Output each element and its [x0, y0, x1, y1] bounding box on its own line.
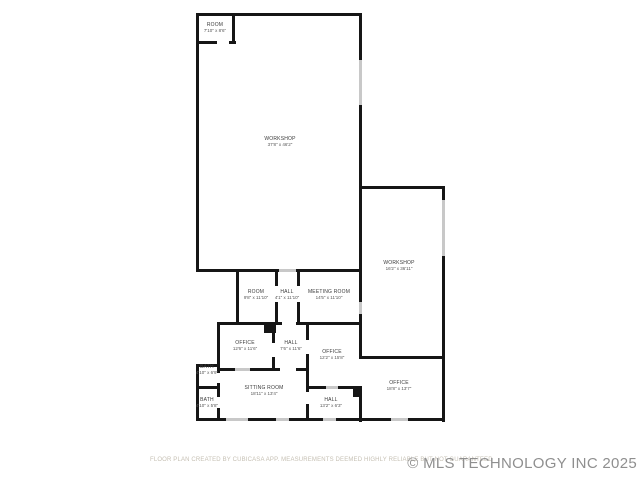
watermark-text: © MLS TECHNOLOGY INC 2025	[407, 455, 637, 472]
label-workshop-main: WORKSHOP 37'8" x 46'2"	[264, 136, 295, 148]
room-dims: 14'5" x 11'10"	[316, 295, 343, 301]
label-office-left: OFFICE 12'6" x 11'6"	[233, 340, 257, 352]
room-dims: 12'6" x 11'6"	[233, 346, 257, 352]
room-dims: 9'8" x 11'10"	[244, 295, 268, 301]
room-dims: 4'10" x 6'9"	[196, 370, 218, 376]
label-hall-lower: HALL 13'2" x 6'3"	[320, 397, 342, 409]
room-dims: 7'6" x 11'6"	[280, 346, 302, 352]
room-dims: 13'2" x 6'3"	[320, 403, 342, 409]
room-dims: 18'8" x 13'7"	[387, 386, 412, 392]
label-room-topleft: ROOM 7'10" x 8'6"	[204, 22, 226, 34]
label-bath-lower: BATH 4'10" x 5'8"	[196, 397, 218, 409]
room-dims: 12'2" x 15'8"	[320, 355, 345, 361]
room-dims: 7'10" x 8'6"	[204, 28, 226, 34]
label-hall-middle: HALL 7'6" x 11'6"	[280, 340, 302, 352]
label-workshop-right: WORKSHOP 16'2" x 36'11"	[383, 260, 414, 272]
label-hall-upper: HALL 4'1" x 11'10"	[275, 289, 299, 301]
windows-and-doors-group	[226, 60, 445, 421]
room-dims: 4'1" x 11'10"	[275, 295, 299, 301]
label-office-right: OFFICE 18'8" x 13'7"	[387, 380, 412, 392]
label-meeting-room: MEETING ROOM 14'5" x 11'10"	[308, 289, 350, 301]
room-dims: 16'2" x 36'11"	[386, 266, 413, 272]
floor-plan-canvas: ROOM 7'10" x 8'6" WORKSHOP 37'8" x 46'2"…	[0, 0, 640, 480]
label-sitting-room: SITTING ROOM 18'11" x 13'4"	[244, 385, 283, 397]
room-dims: 4'10" x 5'8"	[196, 403, 218, 409]
label-bath-upper: BATH 4'10" x 6'9"	[196, 364, 218, 376]
room-dims: 37'8" x 46'2"	[268, 142, 293, 148]
label-office-center: OFFICE 12'2" x 15'8"	[320, 349, 345, 361]
label-room-middle: ROOM 9'8" x 11'10"	[244, 289, 268, 301]
room-dims: 18'11" x 13'4"	[251, 391, 278, 397]
